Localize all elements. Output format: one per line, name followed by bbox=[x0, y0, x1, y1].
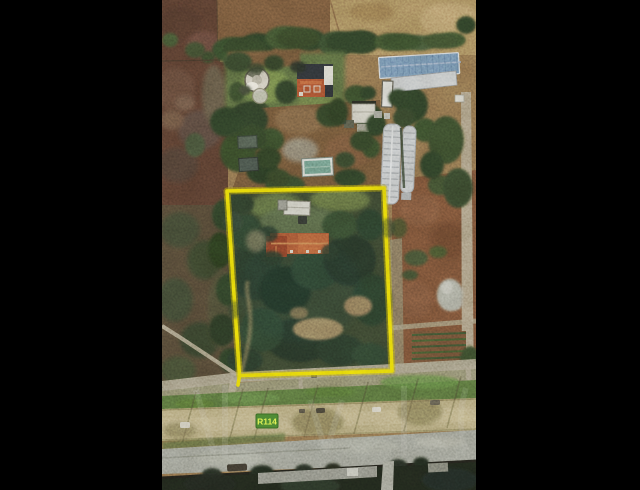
svg-text:R114: R114 bbox=[257, 417, 277, 427]
